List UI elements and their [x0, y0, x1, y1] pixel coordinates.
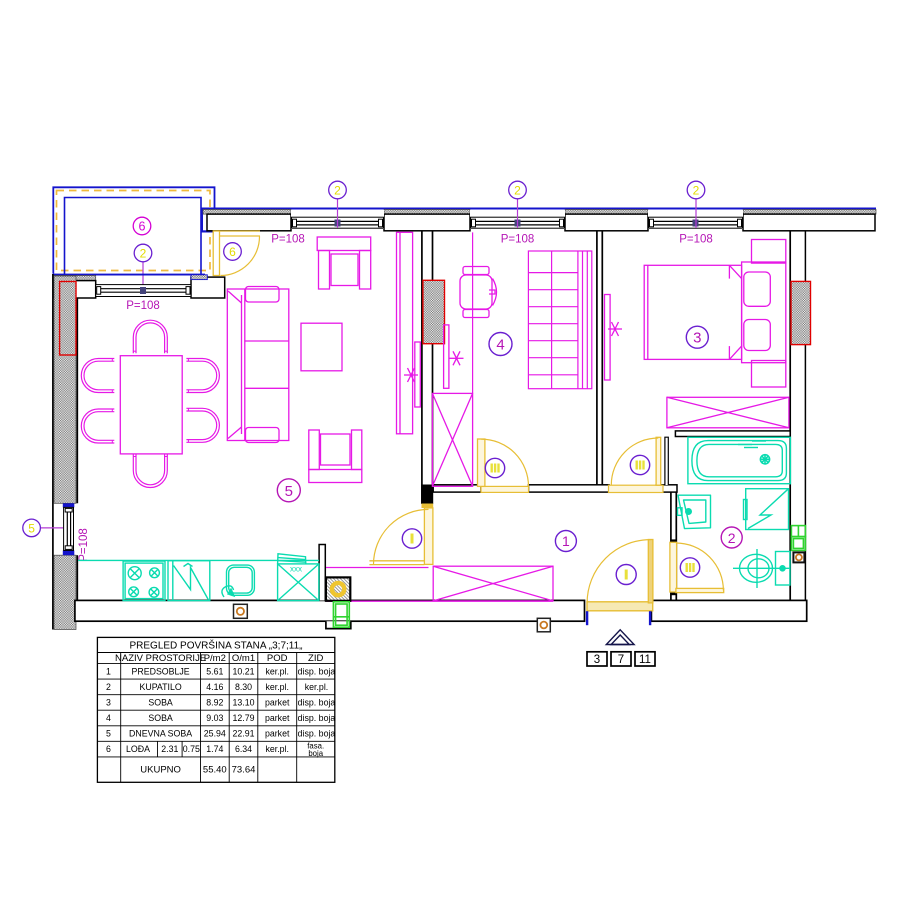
svg-text:LOĐA: LOĐA	[126, 744, 150, 754]
svg-text:0.75: 0.75	[183, 744, 200, 754]
svg-text:5: 5	[28, 521, 35, 535]
svg-text:POD: POD	[267, 653, 288, 664]
svg-text:6.34: 6.34	[235, 744, 252, 754]
svg-text:2: 2	[334, 184, 341, 198]
svg-text:SOBA: SOBA	[148, 713, 173, 723]
svg-text:5: 5	[285, 483, 293, 500]
svg-text:1: 1	[106, 667, 111, 677]
svg-text:6: 6	[229, 245, 236, 259]
svg-text:P=108: P=108	[126, 300, 160, 312]
svg-text:disp. boja: disp. boja	[298, 667, 336, 677]
svg-text:8.30: 8.30	[235, 682, 252, 692]
svg-text:73.64: 73.64	[232, 765, 256, 776]
svg-text:6: 6	[106, 744, 111, 754]
svg-text:P/m2: P/m2	[204, 653, 226, 664]
svg-text:disp. boja: disp. boja	[298, 698, 336, 708]
svg-text:P=108: P=108	[679, 234, 713, 246]
svg-text:10.21: 10.21	[232, 667, 254, 677]
svg-text:1: 1	[562, 533, 570, 549]
svg-text:4: 4	[496, 337, 504, 354]
svg-text:4.16: 4.16	[206, 682, 223, 692]
svg-text:6: 6	[139, 220, 146, 234]
svg-text:13.10: 13.10	[232, 698, 254, 708]
svg-text:ker.pl.: ker.pl.	[265, 682, 288, 692]
svg-text:9.03: 9.03	[206, 713, 223, 723]
svg-text:3: 3	[594, 654, 600, 666]
svg-text:11: 11	[639, 654, 651, 666]
svg-text:12.79: 12.79	[232, 713, 254, 723]
svg-text:parket: parket	[265, 729, 290, 739]
svg-text:22.91: 22.91	[232, 729, 254, 739]
svg-text:4: 4	[106, 713, 111, 723]
svg-text:2: 2	[514, 184, 521, 198]
svg-text:O/m1: O/m1	[232, 653, 255, 664]
svg-text:SOBA: SOBA	[148, 698, 173, 708]
svg-text:5: 5	[106, 729, 111, 739]
svg-text:parket: parket	[265, 713, 290, 723]
svg-text:PREDSOBLJE: PREDSOBLJE	[132, 667, 190, 677]
svg-text:PREGLED POVRŠINA STANA „3;7: PREGLED POVRŠINA STANA „3;7;11„	[129, 639, 302, 652]
svg-text:8.92: 8.92	[206, 698, 223, 708]
svg-text:disp. boja: disp. boja	[298, 713, 336, 723]
svg-text:2: 2	[693, 184, 700, 198]
svg-text:disp. boja: disp. boja	[298, 729, 336, 739]
svg-text:25.94: 25.94	[204, 729, 226, 739]
svg-text:ker.pl.: ker.pl.	[265, 744, 288, 754]
svg-text:KUPATILO: KUPATILO	[139, 682, 181, 692]
svg-text:2.31: 2.31	[161, 744, 178, 754]
svg-text:DNEVNA SOBA: DNEVNA SOBA	[129, 729, 192, 739]
svg-text:ker.pl.: ker.pl.	[305, 682, 328, 692]
svg-text:NAZIV PROSTORIJE: NAZIV PROSTORIJE	[115, 653, 206, 664]
svg-text:1.74: 1.74	[206, 744, 223, 754]
svg-text:P=108: P=108	[78, 528, 90, 562]
svg-text:2: 2	[728, 530, 736, 546]
svg-text:boja: boja	[308, 749, 323, 758]
svg-text:5.61: 5.61	[206, 667, 223, 677]
svg-text:xxx: xxx	[290, 565, 302, 574]
svg-text:55.40: 55.40	[203, 765, 227, 776]
svg-text:2: 2	[140, 247, 147, 261]
svg-text:ker.pl.: ker.pl.	[265, 667, 288, 677]
svg-text:P=108: P=108	[271, 234, 305, 246]
svg-text:7: 7	[618, 654, 624, 666]
svg-text:ZID: ZID	[308, 653, 323, 664]
svg-text:UKUPNO: UKUPNO	[140, 765, 181, 776]
svg-text:3: 3	[693, 330, 701, 347]
svg-text:2: 2	[106, 682, 111, 692]
svg-text:3: 3	[106, 698, 111, 708]
svg-text:parket: parket	[265, 698, 290, 708]
svg-text:P=108: P=108	[501, 234, 535, 246]
